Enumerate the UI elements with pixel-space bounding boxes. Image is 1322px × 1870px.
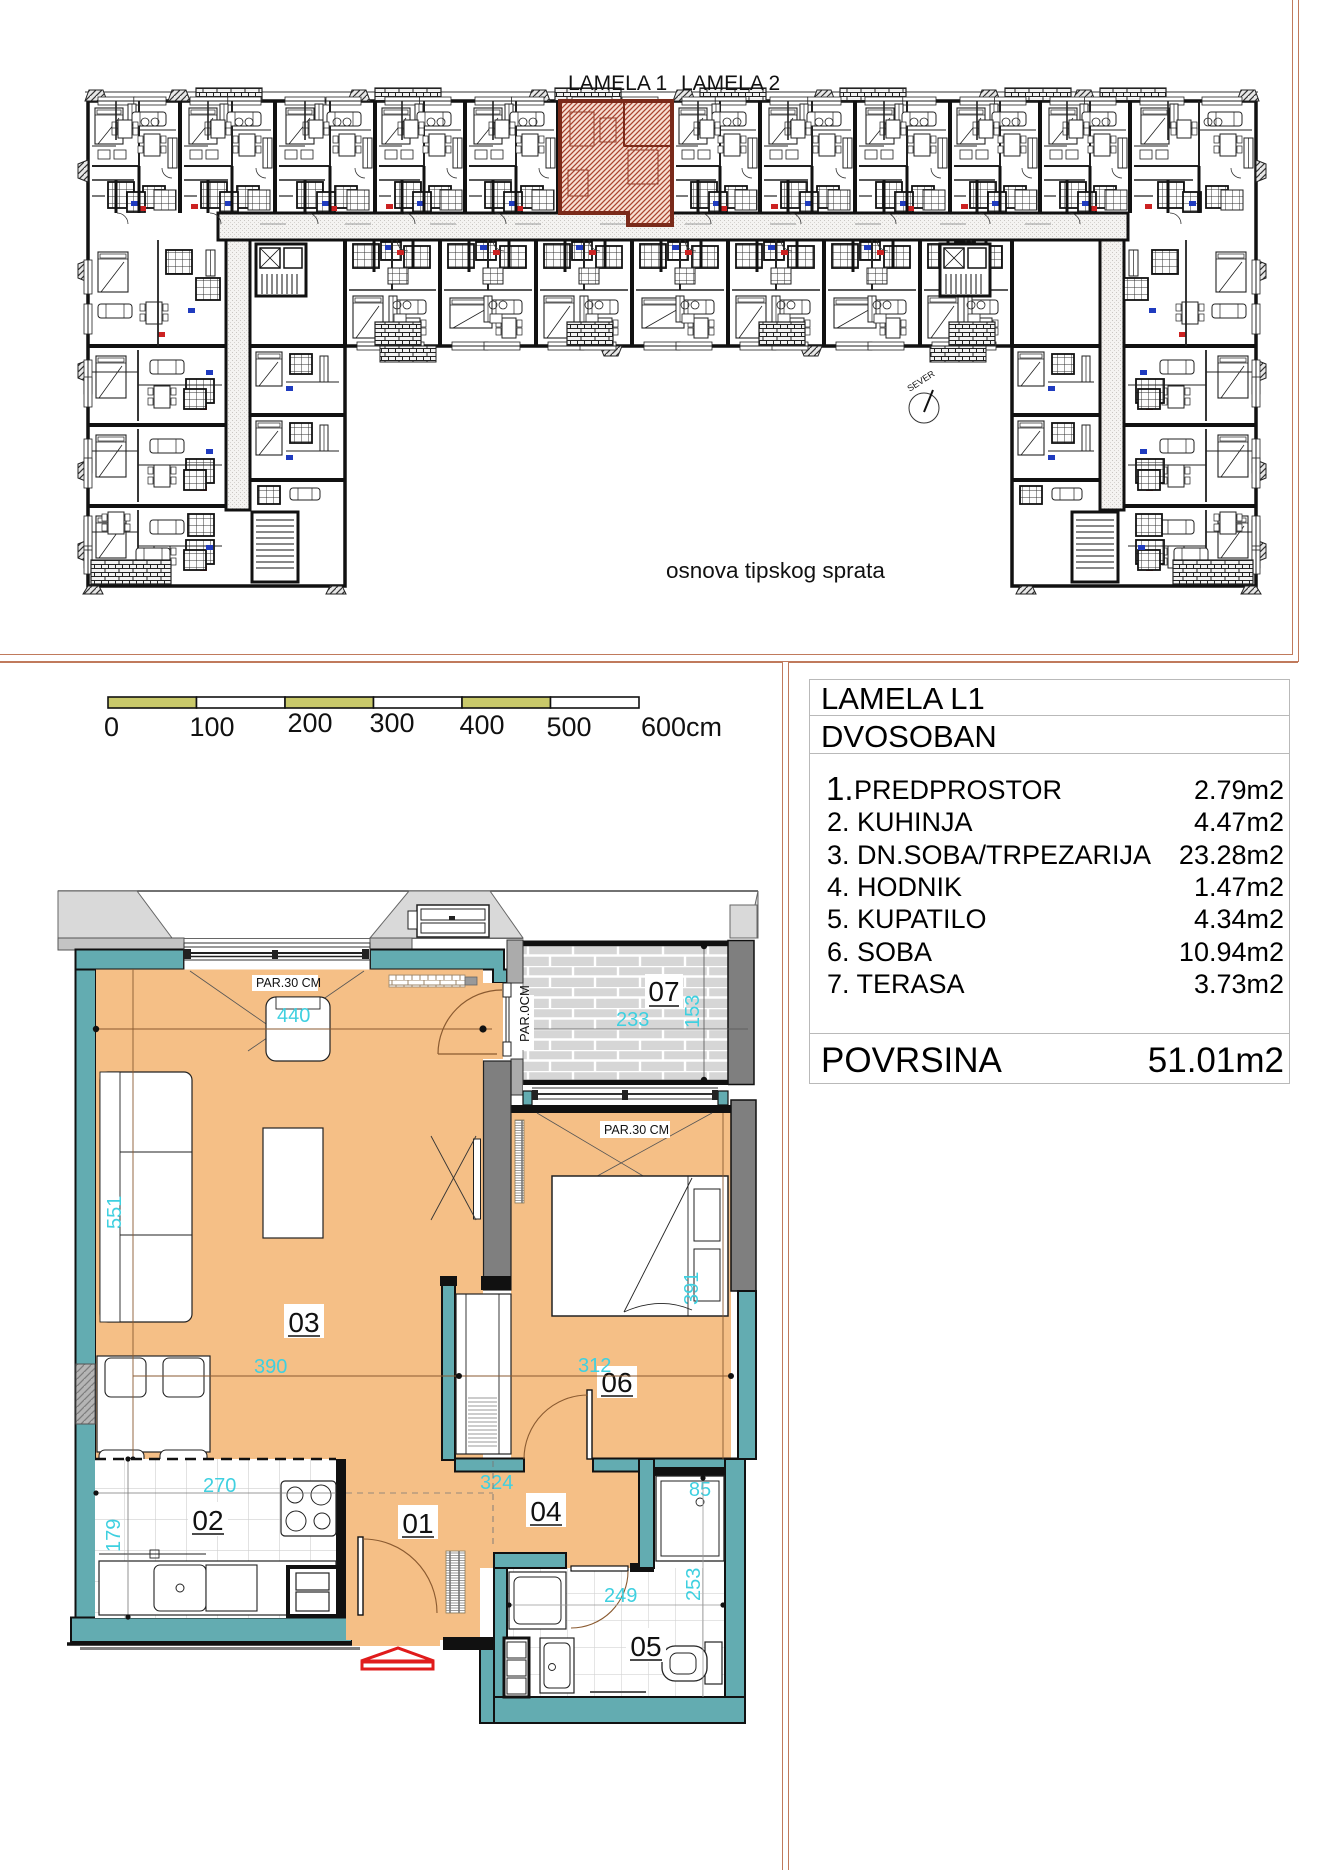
svg-text:233: 233 xyxy=(616,1009,649,1031)
svg-text:02: 02 xyxy=(192,1505,223,1536)
svg-text:PAR.0CM: PAR.0CM xyxy=(517,985,532,1042)
svg-text:324: 324 xyxy=(480,1472,513,1494)
svg-text:PAR.30 CM: PAR.30 CM xyxy=(604,1123,669,1137)
svg-text:270: 270 xyxy=(203,1475,236,1497)
svg-text:312: 312 xyxy=(578,1355,611,1377)
svg-text:391: 391 xyxy=(681,1272,703,1305)
svg-text:253: 253 xyxy=(683,1568,705,1601)
svg-text:440: 440 xyxy=(277,1005,310,1027)
svg-text:249: 249 xyxy=(604,1585,637,1607)
svg-text:551: 551 xyxy=(104,1196,126,1229)
svg-text:04: 04 xyxy=(530,1496,561,1527)
svg-text:03: 03 xyxy=(288,1307,319,1338)
svg-text:05: 05 xyxy=(630,1631,661,1662)
svg-text:390: 390 xyxy=(254,1356,287,1378)
svg-text:179: 179 xyxy=(103,1519,125,1552)
svg-text:07: 07 xyxy=(648,976,679,1007)
svg-text:153: 153 xyxy=(682,995,704,1028)
svg-text:01: 01 xyxy=(402,1508,433,1539)
svg-text:PAR.30 CM: PAR.30 CM xyxy=(256,976,321,990)
